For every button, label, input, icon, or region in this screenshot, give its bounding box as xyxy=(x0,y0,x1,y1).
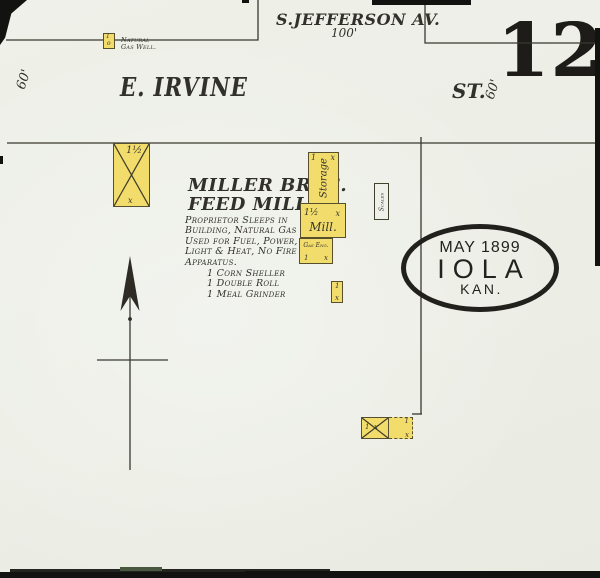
mill-label: Mill. xyxy=(309,220,337,234)
sanborn-map-sheet: S.JEFFERSON AV. 100' E. IRVINE ST. 60' 6… xyxy=(0,0,600,578)
scales-label: Scales xyxy=(378,192,385,210)
scan-edge-bottom-tint xyxy=(120,567,162,571)
block-line-northwest xyxy=(6,0,258,40)
gas-engine-label: Gas Eng. xyxy=(303,242,328,249)
gas-well-mark: o xyxy=(107,40,111,47)
building-derrick: 1½ x xyxy=(113,143,150,207)
derrick-stories: 1½ xyxy=(126,145,142,156)
building-barn-extension: 1 x xyxy=(389,417,413,439)
gas-well-marker: 1 o xyxy=(103,33,115,49)
storage-stories: 1 xyxy=(311,153,316,162)
stamp-state: KAN. xyxy=(460,282,503,297)
building-shed: 1 x xyxy=(331,281,343,303)
building-gas-engine: Gas Eng. 1 x xyxy=(299,238,333,264)
mill-mark: x xyxy=(335,209,340,218)
scan-edge-right xyxy=(595,28,600,266)
derrick-mark: x xyxy=(128,196,133,205)
barn-ext-mark: x xyxy=(405,431,409,439)
stamp-city: IOLA xyxy=(437,256,531,282)
building-storage: Storage 1 x xyxy=(308,152,339,204)
scan-edge-bottom-bar xyxy=(245,571,600,578)
scan-edge-top-bar xyxy=(372,0,471,5)
building-mill: 1½ x Mill. xyxy=(300,203,346,238)
scales-platform: Scales xyxy=(374,183,389,220)
barn-ext-stories: 1 xyxy=(405,417,409,425)
block-line-northeast xyxy=(425,0,597,43)
scan-edge-top-tick xyxy=(242,0,249,3)
shed-mark: x xyxy=(335,294,339,302)
scan-edge-left-nub xyxy=(0,156,3,164)
storage-label: Storage xyxy=(318,158,329,198)
shed-stories: 1 xyxy=(335,282,339,290)
barn-stories: 1 xyxy=(365,423,369,431)
gas-engine-stories: 1 xyxy=(304,254,308,262)
gas-engine-mark: x xyxy=(324,254,328,262)
barn-mark: x xyxy=(374,423,378,431)
mill-stories: 1½ xyxy=(304,208,318,218)
scan-edge-bottom-bar-left xyxy=(0,572,245,578)
gas-well-story: 1 xyxy=(106,33,110,40)
building-barn: 1 x xyxy=(361,417,389,439)
date-stamp-oval: MAY 1899 IOLA KAN. xyxy=(401,224,559,312)
storage-mark: x xyxy=(330,153,335,162)
